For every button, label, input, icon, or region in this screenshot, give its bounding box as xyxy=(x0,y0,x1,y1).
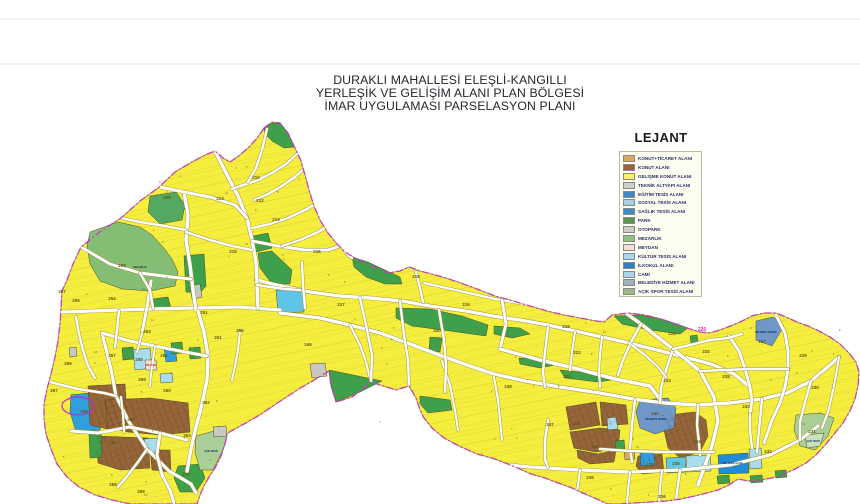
svg-text:268: 268 xyxy=(109,482,117,487)
svg-text:237: 237 xyxy=(646,462,654,467)
svg-text:235: 235 xyxy=(672,461,680,466)
svg-text:234: 234 xyxy=(693,439,701,444)
svg-text:223: 223 xyxy=(663,378,671,383)
svg-text:225: 225 xyxy=(668,331,676,336)
svg-text:255: 255 xyxy=(72,298,80,303)
svg-text:BELEDİYE HİZMET: BELEDİYE HİZMET xyxy=(645,418,667,421)
svg-text:219: 219 xyxy=(562,324,570,329)
svg-text:212: 212 xyxy=(256,198,264,203)
svg-text:2: 2 xyxy=(159,180,161,184)
svg-text:MEYDAN: MEYDAN xyxy=(146,364,157,367)
svg-text:262: 262 xyxy=(202,400,210,405)
svg-text:253: 253 xyxy=(143,329,151,334)
svg-text:242: 242 xyxy=(591,444,599,449)
svg-text:219: 219 xyxy=(462,302,470,307)
svg-text:264: 264 xyxy=(109,440,117,445)
svg-text:217: 217 xyxy=(337,302,345,307)
svg-text:220: 220 xyxy=(433,328,441,333)
svg-text:215: 215 xyxy=(229,249,237,254)
svg-text:257: 257 xyxy=(108,353,116,358)
svg-text:222: 222 xyxy=(573,350,581,355)
svg-text:218: 218 xyxy=(412,274,420,279)
svg-text:260: 260 xyxy=(163,388,171,393)
svg-text:248: 248 xyxy=(504,384,512,389)
svg-text:251: 251 xyxy=(200,310,208,315)
svg-text:270: 270 xyxy=(182,472,190,477)
svg-text:208: 208 xyxy=(118,263,126,268)
svg-text:269: 269 xyxy=(137,489,145,494)
svg-text:7: 7 xyxy=(379,420,381,424)
svg-text:230: 230 xyxy=(811,385,819,390)
svg-text:221: 221 xyxy=(563,374,571,379)
svg-text:226: 226 xyxy=(698,327,707,333)
svg-text:216: 216 xyxy=(313,249,321,254)
svg-text:249: 249 xyxy=(80,409,88,414)
svg-text:229: 229 xyxy=(799,353,807,358)
svg-text:232: 232 xyxy=(764,449,772,454)
svg-text:261: 261 xyxy=(214,335,222,340)
svg-text:214: 214 xyxy=(216,196,224,201)
svg-text:256: 256 xyxy=(64,361,72,366)
svg-text:227: 227 xyxy=(758,339,766,344)
svg-text:231: 231 xyxy=(808,429,816,434)
svg-text:8: 8 xyxy=(839,328,841,332)
svg-text:228: 228 xyxy=(722,374,730,379)
svg-text:241: 241 xyxy=(573,421,581,426)
svg-text:213: 213 xyxy=(272,217,280,222)
svg-text:240: 240 xyxy=(651,411,659,416)
svg-text:246: 246 xyxy=(304,342,312,347)
svg-text:247: 247 xyxy=(546,422,554,427)
svg-text:AÇIK SPOR: AÇIK SPOR xyxy=(204,450,218,453)
svg-text:210: 210 xyxy=(252,175,260,180)
svg-text:245: 245 xyxy=(586,475,594,480)
svg-text:BELEDİYE HİZMET: BELEDİYE HİZMET xyxy=(755,331,777,334)
svg-text:263: 263 xyxy=(183,433,191,438)
svg-text:254: 254 xyxy=(108,296,116,301)
svg-text:207: 207 xyxy=(58,289,66,294)
svg-text:233: 233 xyxy=(742,404,750,409)
svg-text:258: 258 xyxy=(135,357,143,362)
svg-text:209: 209 xyxy=(163,195,171,200)
svg-text:MEZARLIK: MEZARLIK xyxy=(133,265,147,269)
svg-text:267: 267 xyxy=(50,388,58,393)
svg-text:259: 259 xyxy=(138,377,146,382)
svg-text:224: 224 xyxy=(702,349,710,354)
svg-text:AÇIK SPOR: AÇIK SPOR xyxy=(806,440,820,443)
svg-text:252: 252 xyxy=(160,353,168,358)
svg-text:265: 265 xyxy=(127,417,135,422)
svg-text:250: 250 xyxy=(236,328,244,333)
svg-text:236: 236 xyxy=(658,494,666,499)
svg-text:LİSE TESİS ALANI: LİSE TESİS ALANI xyxy=(722,462,743,465)
